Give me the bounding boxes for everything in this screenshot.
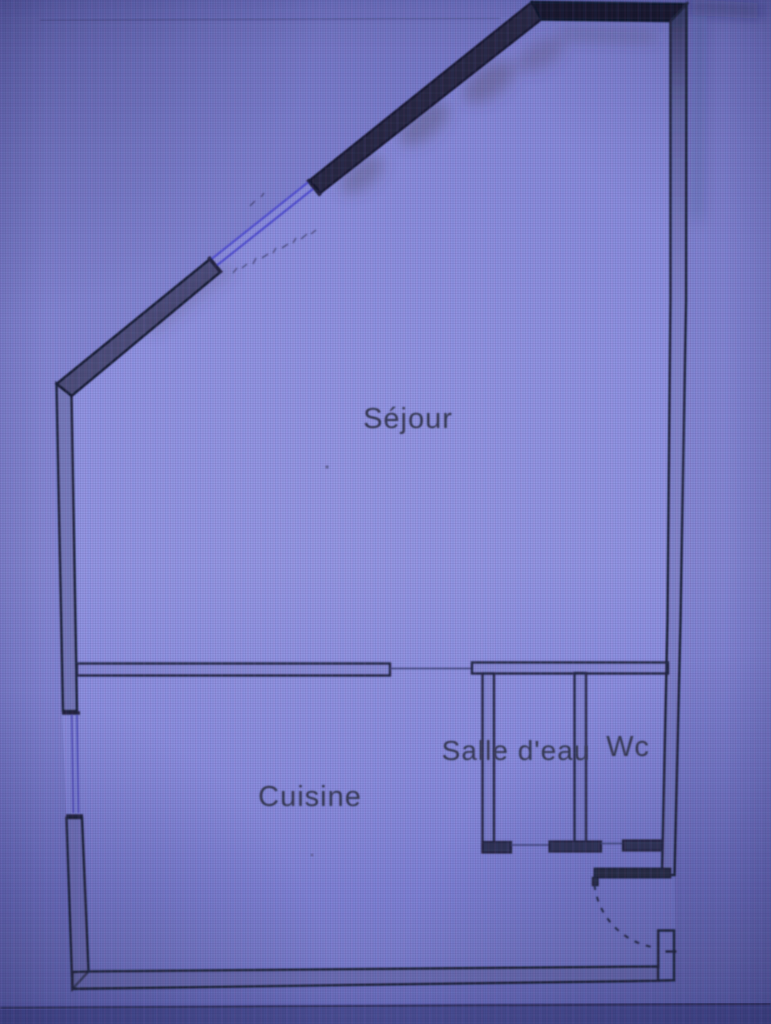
svg-text:Séjour: Séjour xyxy=(363,403,453,435)
svg-text:Salle d'eau: Salle d'eau xyxy=(442,735,591,766)
svg-text:Cuisine: Cuisine xyxy=(258,781,362,813)
svg-text:Wc: Wc xyxy=(606,731,650,763)
